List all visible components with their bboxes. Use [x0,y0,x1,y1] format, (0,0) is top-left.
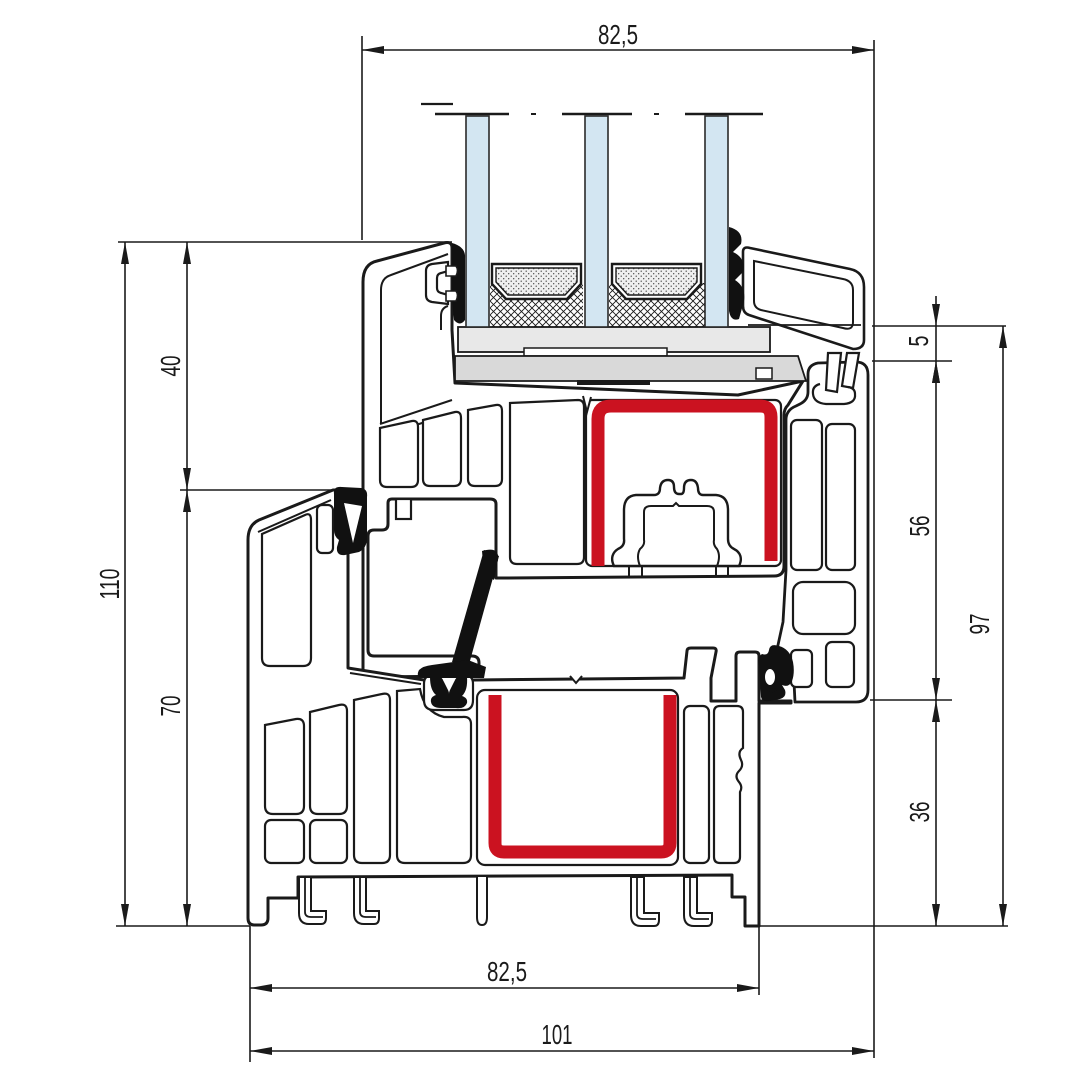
svg-text:56: 56 [904,516,935,537]
svg-text:110: 110 [94,569,125,600]
svg-text:70: 70 [155,696,186,717]
svg-text:101: 101 [542,1019,573,1050]
svg-text:82,5: 82,5 [487,956,527,987]
svg-text:36: 36 [904,802,935,823]
svg-text:97: 97 [964,614,995,635]
svg-text:82,5: 82,5 [598,19,638,50]
svg-text:5: 5 [903,336,934,347]
svg-text:40: 40 [155,356,186,377]
